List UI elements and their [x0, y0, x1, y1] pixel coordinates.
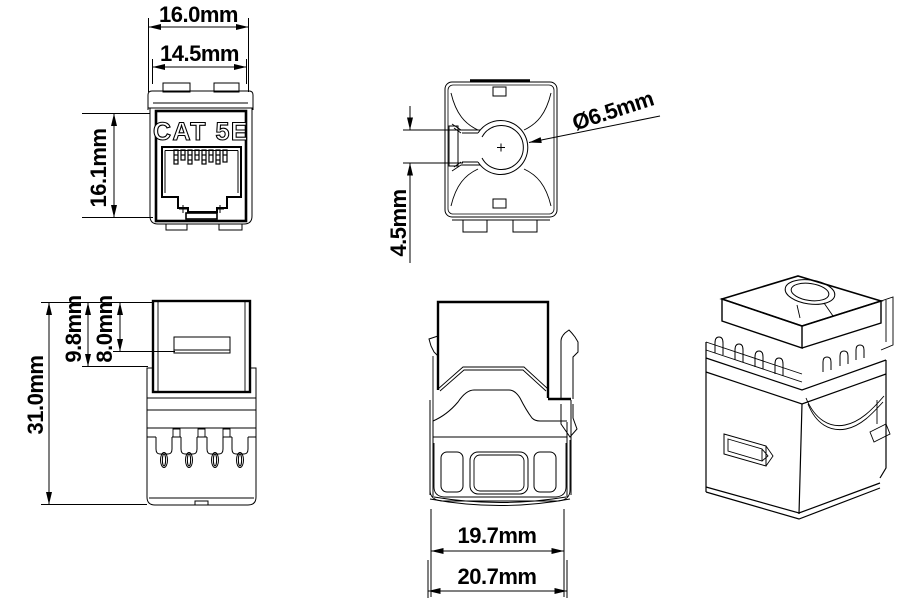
dim-window-offset-label: 8.0mm [92, 289, 118, 369]
dim-front-face-height-label: 16.1mm [86, 128, 112, 208]
dim-upper-section-label: 9.8mm [61, 289, 87, 369]
product-marking: CAT 5E [153, 118, 249, 146]
dim-front-inner-width-label: 14.5mm [149, 41, 250, 67]
dim-rear-inner-width-label: 19.7mm [446, 523, 548, 549]
technical-drawing: CAT 5E [0, 0, 922, 600]
isometric-view [706, 276, 893, 519]
drawing-canvas: CAT 5E [0, 0, 922, 600]
dim-overall-height-label: 31.0mm [23, 355, 49, 435]
top-view [445, 81, 557, 233]
dim-rear-outer-width-label: 20.7mm [446, 564, 548, 590]
dimension-annotations [41, 18, 660, 598]
side-view [147, 301, 256, 505]
front-view: CAT 5E [148, 83, 253, 230]
dim-front-outer-width-label: 16.0mm [148, 2, 249, 28]
rear-view [429, 302, 578, 506]
dim-hole-offset-label: 4.5mm [386, 183, 412, 263]
